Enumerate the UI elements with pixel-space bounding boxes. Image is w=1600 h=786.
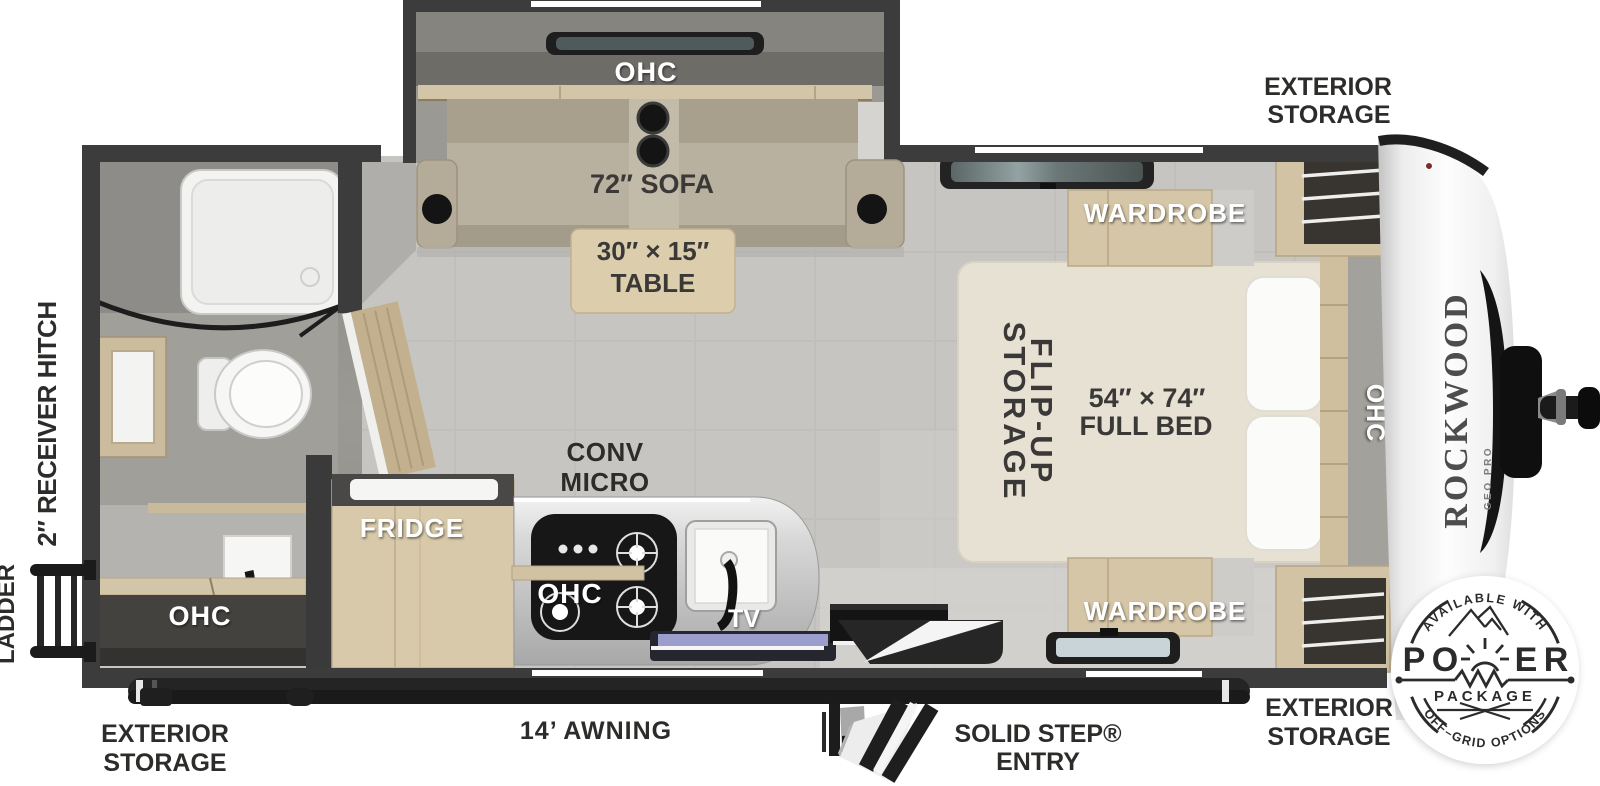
svg-text:EXTERIOR: EXTERIOR <box>101 720 229 748</box>
svg-text:WARDROBE: WARDROBE <box>1084 596 1247 626</box>
svg-text:14’ AWNING: 14’ AWNING <box>520 717 672 745</box>
svg-text:STORAGE: STORAGE <box>103 749 226 777</box>
svg-text:FULL BED: FULL BED <box>1080 411 1213 441</box>
svg-text:FLIP-UP: FLIP-UP <box>1024 338 1059 487</box>
svg-text:EXTERIOR: EXTERIOR <box>1264 73 1392 101</box>
svg-text:OHC: OHC <box>169 601 232 631</box>
svg-text:WARDROBE: WARDROBE <box>1084 198 1247 228</box>
svg-text:GEO PRO: GEO PRO <box>1483 446 1494 510</box>
svg-text:OHC: OHC <box>537 578 602 609</box>
svg-text:ENTRY: ENTRY <box>996 748 1080 776</box>
svg-text:P: P <box>1403 641 1426 679</box>
svg-text:MICRO: MICRO <box>560 467 649 497</box>
svg-text:CONV: CONV <box>566 437 643 467</box>
svg-text:54″ × 74″: 54″ × 74″ <box>1089 383 1206 413</box>
svg-text:FRIDGE: FRIDGE <box>360 513 464 543</box>
svg-text:2″ RECEIVER HITCH: 2″ RECEIVER HITCH <box>32 301 62 546</box>
svg-text:E: E <box>1515 641 1538 679</box>
svg-text:PACKAGE: PACKAGE <box>1434 688 1536 705</box>
svg-text:72″ SOFA: 72″ SOFA <box>590 169 714 199</box>
svg-text:30″ × 15″: 30″ × 15″ <box>597 236 709 266</box>
svg-text:EXTERIOR: EXTERIOR <box>1265 694 1393 722</box>
svg-text:SOLID STEP®: SOLID STEP® <box>954 720 1122 748</box>
svg-text:OHC: OHC <box>615 57 678 87</box>
svg-text:STORAGE: STORAGE <box>1267 723 1390 751</box>
svg-text:R: R <box>1544 641 1569 679</box>
svg-text:LADDER: LADDER <box>0 564 20 664</box>
svg-text:TABLE: TABLE <box>611 268 696 298</box>
svg-text:ROCKWOOD: ROCKWOOD <box>1438 291 1475 528</box>
svg-text:STORAGE: STORAGE <box>1267 101 1390 129</box>
svg-text:O: O <box>1432 641 1458 679</box>
svg-text:TV: TV <box>728 605 760 633</box>
